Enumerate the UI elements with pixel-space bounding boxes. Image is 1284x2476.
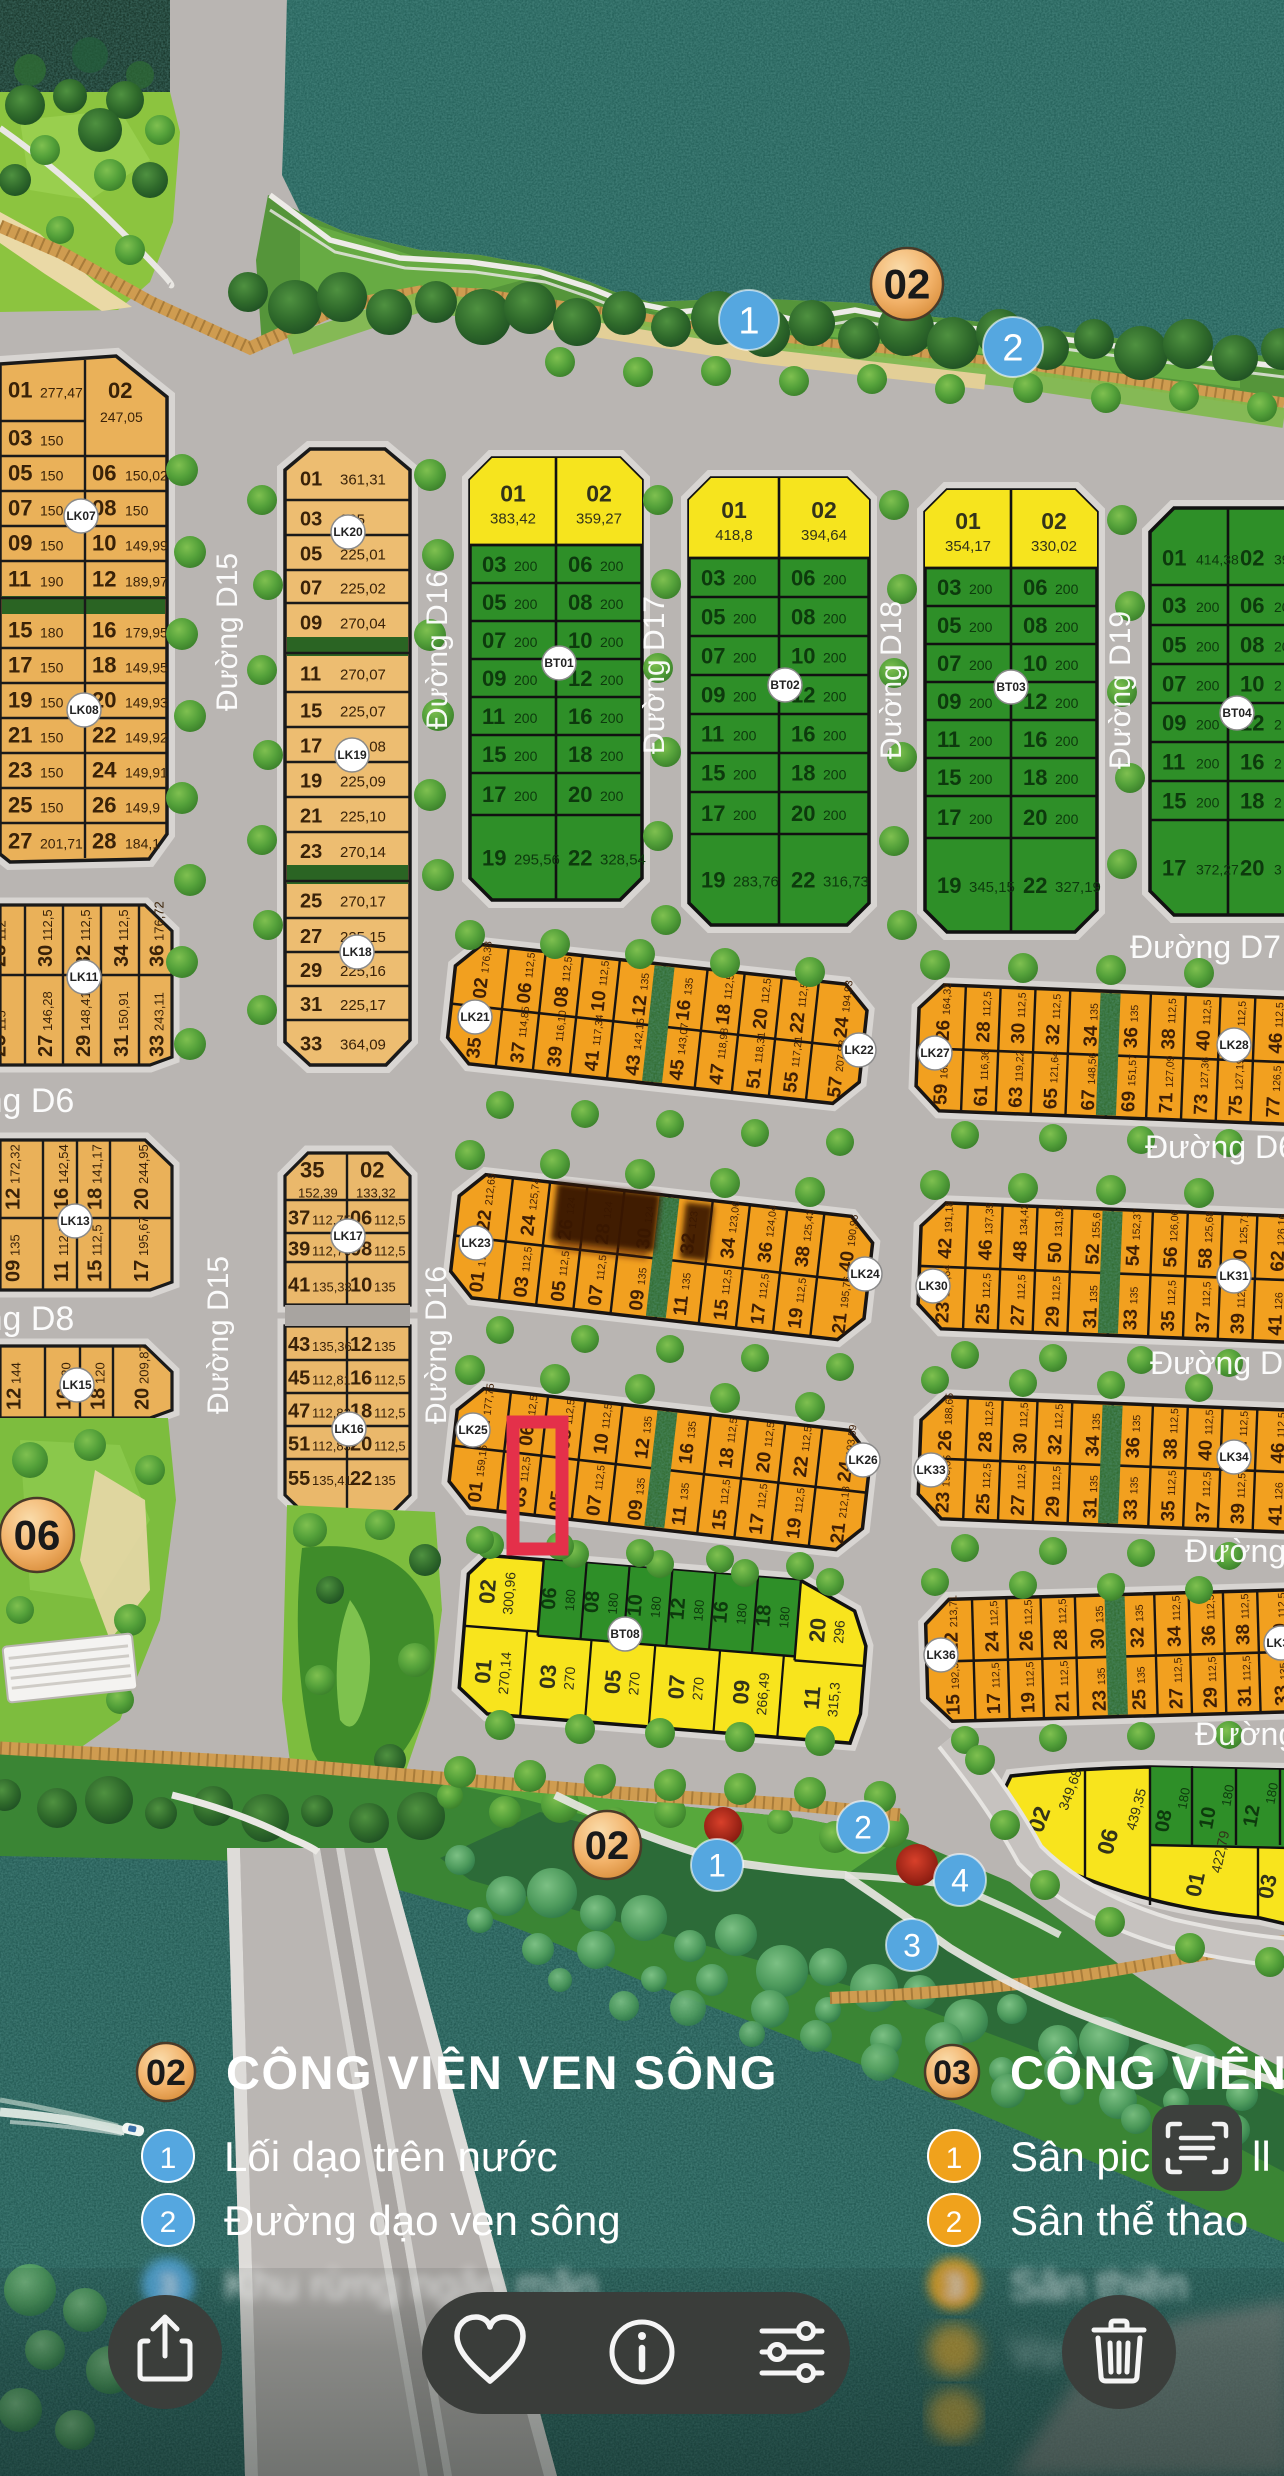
svg-text:200: 200	[514, 596, 538, 612]
svg-text:1: 1	[708, 1848, 726, 1884]
svg-text:41: 41	[1265, 1504, 1284, 1526]
svg-text:28: 28	[1051, 1629, 1073, 1651]
svg-text:200: 200	[969, 695, 993, 711]
svg-text:149,99: 149,99	[125, 538, 168, 554]
svg-text:19: 19	[8, 688, 32, 713]
svg-text:135: 135	[1090, 1413, 1103, 1431]
svg-text:200: 200	[733, 572, 757, 588]
svg-text:01: 01	[1180, 1870, 1210, 1899]
svg-text:48: 48	[1010, 1240, 1032, 1262]
svg-text:46: 46	[1267, 1442, 1284, 1464]
svg-text:149,91: 149,91	[125, 765, 168, 781]
svg-text:LK21: LK21	[460, 1010, 490, 1024]
svg-text:200: 200	[600, 672, 624, 688]
svg-text:26: 26	[935, 1429, 957, 1451]
svg-text:270,17: 270,17	[340, 894, 386, 911]
svg-text:07: 07	[482, 628, 506, 653]
svg-text:02: 02	[811, 497, 837, 523]
svg-text:27: 27	[300, 926, 322, 948]
svg-text:225,10: 225,10	[340, 809, 386, 826]
svg-text:200: 200	[823, 767, 847, 783]
svg-text:112,5: 112,5	[1238, 1411, 1251, 1437]
svg-text:17: 17	[701, 801, 725, 826]
svg-text:02: 02	[146, 2052, 186, 2093]
svg-text:150: 150	[40, 538, 64, 554]
svg-text:27: 27	[1007, 1304, 1029, 1326]
svg-text:01: 01	[466, 1270, 489, 1294]
svg-text:01: 01	[955, 508, 981, 534]
svg-text:11: 11	[670, 1294, 693, 1317]
svg-text:150: 150	[40, 468, 64, 484]
svg-text:20: 20	[750, 1007, 773, 1030]
svg-text:155,6: 155,6	[1090, 1212, 1103, 1239]
svg-text:LK33: LK33	[916, 1463, 946, 1477]
svg-text:08: 08	[1151, 1808, 1177, 1834]
svg-text:21: 21	[1052, 1690, 1074, 1712]
svg-text:15: 15	[937, 765, 961, 790]
svg-text:2: 2	[854, 1810, 872, 1846]
svg-text:112,5: 112,5	[1053, 1403, 1066, 1429]
svg-text:03: 03	[1162, 593, 1186, 618]
svg-text:06: 06	[514, 981, 537, 1004]
svg-text:270: 270	[689, 1676, 707, 1701]
svg-text:11: 11	[482, 704, 505, 729]
svg-text:LK19: LK19	[337, 748, 367, 762]
svg-text:270,07: 270,07	[340, 667, 386, 684]
svg-text:22: 22	[350, 1468, 372, 1490]
svg-text:09: 09	[8, 531, 32, 556]
svg-text:54: 54	[1123, 1244, 1145, 1266]
svg-text:29: 29	[73, 1035, 95, 1057]
svg-text:65: 65	[1040, 1087, 1062, 1109]
svg-text:2: 2	[1274, 756, 1282, 772]
svg-text:225,07: 225,07	[340, 704, 386, 721]
svg-text:62: 62	[1267, 1250, 1284, 1272]
svg-text:315,3: 315,3	[824, 1681, 843, 1717]
svg-text:09: 09	[3, 1260, 25, 1282]
svg-text:37: 37	[1193, 1501, 1215, 1523]
svg-text:150: 150	[125, 503, 149, 519]
svg-text:LK16: LK16	[334, 1422, 364, 1436]
svg-text:52: 52	[1082, 1243, 1104, 1265]
svg-text:39: 39	[544, 1045, 567, 1068]
svg-text:39: 39	[1227, 1313, 1249, 1335]
svg-text:115: 115	[0, 1010, 9, 1031]
svg-text:12: 12	[631, 1437, 654, 1460]
svg-text:150: 150	[40, 433, 64, 449]
svg-text:277,47: 277,47	[40, 385, 83, 401]
svg-text:20: 20	[1023, 805, 1047, 830]
svg-text:112,5: 112,5	[1050, 1465, 1063, 1491]
svg-text:119,22: 119,22	[1013, 1050, 1026, 1082]
svg-text:07: 07	[937, 651, 961, 676]
svg-text:176,72: 176,72	[152, 901, 167, 941]
svg-text:327,19: 327,19	[1055, 879, 1101, 896]
svg-text:LK25: LK25	[458, 1423, 488, 1437]
svg-text:2: 2	[1274, 678, 1282, 694]
svg-text:Vư: Vư	[1010, 2327, 1066, 2374]
svg-text:30: 30	[1008, 1022, 1030, 1044]
svg-text:135: 135	[682, 977, 696, 996]
svg-text:30: 30	[35, 945, 57, 967]
svg-text:195,67: 195,67	[136, 1216, 151, 1256]
svg-text:200: 200	[1196, 756, 1220, 772]
svg-text:126,06: 126,06	[1168, 1209, 1181, 1242]
svg-text:20: 20	[791, 801, 815, 826]
svg-text:10: 10	[590, 1432, 613, 1455]
svg-text:06: 06	[14, 1512, 61, 1559]
svg-text:LK30: LK30	[918, 1279, 948, 1293]
svg-text:09: 09	[701, 683, 725, 708]
svg-text:08: 08	[581, 1590, 605, 1614]
svg-text:112,5: 112,5	[1275, 1412, 1284, 1438]
svg-text:55: 55	[288, 1468, 310, 1490]
svg-text:133,32: 133,32	[356, 1186, 396, 1201]
svg-text:2: 2	[1274, 795, 1282, 811]
svg-text:135: 135	[636, 1267, 650, 1286]
svg-text:172,32: 172,32	[8, 1144, 23, 1184]
svg-text:30: 30	[1010, 1432, 1032, 1454]
svg-text:03: 03	[8, 426, 32, 451]
svg-text:ll: ll	[1252, 2133, 1271, 2180]
svg-text:02: 02	[1240, 546, 1264, 571]
svg-text:345,15: 345,15	[969, 879, 1015, 896]
svg-text:225,02: 225,02	[340, 581, 386, 598]
svg-text:22: 22	[92, 723, 116, 748]
svg-text:144: 144	[9, 1362, 24, 1384]
svg-text:34: 34	[717, 1236, 740, 1260]
svg-text:22: 22	[791, 868, 815, 893]
svg-text:09: 09	[728, 1679, 755, 1705]
svg-text:Đường D15: Đường D15	[202, 1256, 235, 1414]
svg-text:11: 11	[1162, 750, 1185, 775]
svg-text:18: 18	[712, 1003, 735, 1026]
svg-text:372,27: 372,27	[1196, 862, 1239, 878]
svg-text:17: 17	[131, 1260, 153, 1282]
svg-text:10: 10	[791, 644, 815, 669]
svg-text:11: 11	[51, 1261, 73, 1282]
svg-text:22: 22	[1023, 873, 1047, 898]
svg-text:414,38: 414,38	[1196, 552, 1239, 568]
svg-text:21: 21	[827, 1521, 850, 1545]
svg-text:20: 20	[753, 1451, 776, 1474]
svg-text:180: 180	[647, 1596, 664, 1619]
svg-text:137,35: 137,35	[983, 1202, 996, 1235]
svg-text:31: 31	[300, 994, 322, 1016]
svg-text:213,71: 213,71	[947, 1595, 960, 1628]
svg-text:59: 59	[930, 1083, 952, 1105]
svg-text:4: 4	[951, 1863, 969, 1899]
svg-text:112,5: 112,5	[374, 1244, 406, 1259]
svg-text:16: 16	[791, 722, 815, 747]
svg-text:200: 200	[1055, 733, 1079, 749]
svg-text:21: 21	[8, 723, 32, 748]
svg-text:125,71: 125,71	[1238, 1212, 1251, 1245]
svg-text:200: 200	[600, 558, 624, 574]
svg-text:16: 16	[709, 1600, 733, 1624]
svg-text:149,93: 149,93	[125, 695, 168, 711]
svg-text:112,5: 112,5	[1024, 1661, 1037, 1687]
svg-text:200: 200	[823, 807, 847, 823]
svg-text:41: 41	[1265, 1314, 1284, 1336]
svg-text:Đường D16: Đường D16	[421, 571, 454, 729]
svg-text:112,5: 112,5	[1201, 1471, 1214, 1497]
svg-text:35: 35	[463, 1036, 486, 1060]
svg-text:06: 06	[791, 566, 815, 591]
svg-text:17: 17	[984, 1693, 1006, 1715]
svg-text:359,27: 359,27	[576, 511, 622, 528]
svg-text:33: 33	[300, 1034, 322, 1056]
svg-text:09: 09	[626, 1288, 649, 1311]
svg-text:316,73: 316,73	[823, 874, 869, 891]
svg-text:16: 16	[672, 999, 695, 1022]
svg-text:151,57: 151,57	[1126, 1054, 1139, 1087]
svg-text:243,11: 243,11	[152, 992, 167, 1031]
svg-text:112,5: 112,5	[983, 1401, 996, 1427]
svg-text:Đường dạo ven sông: Đường dạo ven sông	[224, 2197, 621, 2244]
svg-text:Đường D7: Đường D7	[1130, 929, 1281, 965]
svg-text:05: 05	[482, 590, 506, 615]
svg-text:200: 200	[514, 558, 538, 574]
svg-text:200: 200	[969, 619, 993, 635]
svg-text:18: 18	[568, 742, 592, 767]
svg-text:Đường D15: Đường D15	[211, 553, 244, 711]
svg-text:125,68: 125,68	[1203, 1211, 1216, 1244]
svg-text:LK22: LK22	[844, 1043, 874, 1057]
svg-text:03: 03	[937, 575, 961, 600]
svg-text:Đường D8: Đường D8	[0, 1300, 74, 1338]
svg-text:Đường D18: Đường D18	[875, 601, 908, 759]
svg-text:112,5: 112,5	[1273, 1002, 1284, 1028]
svg-text:28: 28	[0, 945, 11, 967]
svg-text:2: 2	[160, 2206, 177, 2239]
svg-text:150: 150	[40, 765, 64, 781]
svg-text:180: 180	[776, 1606, 793, 1629]
svg-text:180: 180	[690, 1599, 707, 1622]
svg-text:247,05: 247,05	[100, 409, 143, 425]
svg-text:02: 02	[108, 378, 132, 403]
svg-text:200: 200	[1055, 695, 1079, 711]
svg-text:LK36: LK36	[926, 1648, 956, 1662]
svg-text:22: 22	[787, 1011, 810, 1034]
svg-text:08: 08	[568, 590, 592, 615]
svg-text:10: 10	[1195, 1805, 1221, 1831]
svg-text:75: 75	[1225, 1094, 1247, 1116]
svg-text:149,9: 149,9	[125, 800, 160, 816]
svg-text:112,5: 112,5	[116, 909, 131, 941]
svg-text:07: 07	[585, 1284, 608, 1307]
svg-text:02: 02	[360, 1158, 384, 1183]
svg-text:34: 34	[111, 944, 133, 967]
svg-text:112,5: 112,5	[1050, 1275, 1063, 1301]
svg-text:47: 47	[288, 1401, 310, 1423]
svg-text:01: 01	[465, 1480, 488, 1504]
svg-text:126,16: 126,16	[1275, 1213, 1284, 1246]
svg-text:38: 38	[1233, 1624, 1255, 1646]
svg-text:296: 296	[830, 1619, 848, 1644]
svg-text:31: 31	[1235, 1685, 1257, 1707]
svg-text:06: 06	[568, 552, 592, 577]
svg-text:23: 23	[300, 841, 322, 863]
svg-text:200: 200	[733, 807, 757, 823]
svg-text:112,5: 112,5	[1236, 1472, 1249, 1498]
svg-text:05: 05	[8, 461, 32, 486]
svg-text:BT04: BT04	[1222, 706, 1252, 720]
svg-text:02: 02	[586, 481, 612, 507]
svg-text:01: 01	[300, 469, 322, 491]
svg-text:10: 10	[92, 531, 116, 556]
svg-text:20: 20	[132, 1388, 154, 1410]
svg-text:112,5: 112,5	[981, 1273, 994, 1299]
svg-text:17: 17	[937, 805, 961, 830]
svg-text:135: 135	[8, 1234, 23, 1256]
svg-text:12: 12	[92, 567, 116, 592]
svg-text:22: 22	[568, 846, 592, 871]
svg-text:29: 29	[1042, 1306, 1064, 1328]
svg-text:01: 01	[500, 481, 526, 507]
svg-text:01: 01	[721, 497, 747, 523]
svg-text:112: 112	[0, 920, 9, 941]
svg-text:112,5: 112,5	[90, 1224, 105, 1256]
svg-text:19: 19	[1018, 1692, 1040, 1714]
svg-text:20: 20	[568, 782, 592, 807]
svg-text:112,5: 112,5	[1201, 1281, 1214, 1307]
svg-text:03: 03	[701, 566, 725, 591]
svg-text:16: 16	[92, 618, 116, 643]
svg-text:39: 39	[288, 1239, 310, 1261]
svg-text:12: 12	[350, 1334, 372, 1356]
svg-text:Đường D19: Đường D19	[1104, 611, 1137, 769]
svg-text:135: 135	[680, 1272, 694, 1291]
svg-text:05: 05	[937, 613, 961, 638]
svg-text:200: 200	[600, 788, 624, 804]
svg-text:20: 20	[804, 1617, 831, 1643]
svg-text:06: 06	[92, 461, 116, 486]
svg-text:LK35: LK35	[1266, 1636, 1284, 1650]
svg-text:126: 126	[1273, 1482, 1284, 1500]
svg-text:BT01: BT01	[544, 656, 574, 670]
svg-text:200: 200	[1055, 771, 1079, 787]
svg-text:LK23: LK23	[461, 1236, 491, 1250]
svg-text:73: 73	[1191, 1093, 1213, 1115]
svg-text:135: 135	[1128, 1476, 1141, 1494]
svg-text:135: 135	[1278, 1662, 1284, 1680]
svg-text:23: 23	[932, 1491, 954, 1513]
svg-text:11: 11	[937, 727, 960, 752]
svg-text:225,09: 225,09	[340, 774, 386, 791]
svg-text:56: 56	[1160, 1246, 1182, 1268]
svg-text:200: 200	[733, 611, 757, 627]
svg-text:22: 22	[790, 1455, 813, 1478]
svg-text:189,97: 189,97	[125, 574, 168, 590]
svg-text:Sân thể thao: Sân thể thao	[1010, 2197, 1248, 2244]
svg-text:18: 18	[1240, 789, 1264, 814]
svg-text:17: 17	[8, 653, 32, 678]
svg-text:270: 270	[625, 1671, 643, 1696]
svg-text:149,95: 149,95	[125, 660, 168, 676]
svg-text:112,5: 112,5	[1166, 1280, 1179, 1306]
svg-text:112,5: 112,5	[374, 1213, 406, 1228]
svg-text:21: 21	[300, 806, 322, 828]
svg-text:05: 05	[300, 544, 322, 566]
svg-text:05: 05	[701, 605, 725, 630]
svg-text:127,36: 127,36	[1199, 1057, 1212, 1090]
svg-text:135: 135	[641, 1415, 655, 1434]
svg-text:36: 36	[1123, 1437, 1145, 1459]
svg-text:135: 135	[374, 1473, 396, 1488]
svg-text:BT03: BT03	[996, 680, 1026, 694]
svg-text:16: 16	[675, 1442, 698, 1465]
svg-text:135,41: 135,41	[312, 1473, 352, 1488]
svg-text:15: 15	[85, 1260, 107, 1282]
svg-text:150: 150	[40, 660, 64, 676]
svg-text:135: 135	[1094, 1605, 1106, 1623]
svg-text:200: 200	[969, 811, 993, 827]
svg-text:112,5: 112,5	[1236, 1001, 1249, 1027]
svg-text:06: 06	[538, 1587, 562, 1611]
svg-text:32: 32	[1043, 1024, 1065, 1046]
svg-text:01: 01	[1162, 546, 1186, 571]
svg-text:10: 10	[1023, 651, 1047, 676]
svg-text:200: 200	[514, 788, 538, 804]
svg-text:25: 25	[1129, 1688, 1151, 1710]
svg-text:01: 01	[470, 1658, 497, 1684]
svg-text:09: 09	[482, 666, 506, 691]
svg-text:135: 135	[634, 1477, 648, 1496]
svg-text:17: 17	[746, 1512, 769, 1535]
svg-text:29: 29	[1200, 1687, 1222, 1709]
svg-text:LK07: LK07	[66, 509, 96, 523]
svg-text:19: 19	[482, 846, 506, 871]
svg-text:06: 06	[1240, 593, 1264, 618]
svg-text:08: 08	[550, 985, 573, 1008]
svg-text:45: 45	[288, 1368, 310, 1390]
svg-text:112,5: 112,5	[40, 909, 55, 941]
svg-text:3: 3	[1274, 862, 1282, 878]
svg-text:03: 03	[482, 552, 506, 577]
svg-text:127,09: 127,09	[1164, 1055, 1177, 1088]
svg-text:135: 135	[1096, 1667, 1108, 1685]
svg-text:112,5: 112,5	[78, 909, 93, 941]
svg-text:24: 24	[517, 1213, 540, 1237]
svg-text:112,5: 112,5	[1168, 1408, 1181, 1434]
svg-text:36: 36	[754, 1241, 777, 1264]
svg-text:02: 02	[1041, 508, 1067, 534]
svg-text:150,02: 150,02	[125, 468, 168, 484]
svg-text:190: 190	[40, 574, 64, 590]
svg-text:24: 24	[982, 1630, 1004, 1652]
svg-text:180: 180	[562, 1589, 579, 1612]
svg-text:112,5: 112,5	[1170, 1595, 1183, 1621]
svg-text:112,5: 112,5	[1166, 998, 1179, 1024]
svg-text:09: 09	[937, 689, 961, 714]
svg-text:148,41: 148,41	[78, 991, 93, 1031]
svg-text:19: 19	[701, 868, 725, 893]
svg-text:69: 69	[1118, 1091, 1140, 1113]
svg-text:200: 200	[514, 634, 538, 650]
svg-text:200: 200	[1196, 678, 1220, 694]
svg-text:19: 19	[784, 1306, 807, 1329]
svg-text:Lối dạo trên nước: Lối dạo trên nước	[224, 2133, 558, 2180]
svg-text:200: 200	[733, 689, 757, 705]
svg-text:135: 135	[685, 1420, 699, 1439]
svg-text:146,28: 146,28	[40, 991, 55, 1031]
svg-text:20: 20	[131, 1188, 153, 1210]
svg-text:06: 06	[1023, 575, 1047, 600]
svg-text:34: 34	[1080, 1025, 1102, 1047]
svg-text:200: 200	[1055, 657, 1079, 673]
svg-text:35: 35	[1158, 1310, 1180, 1332]
